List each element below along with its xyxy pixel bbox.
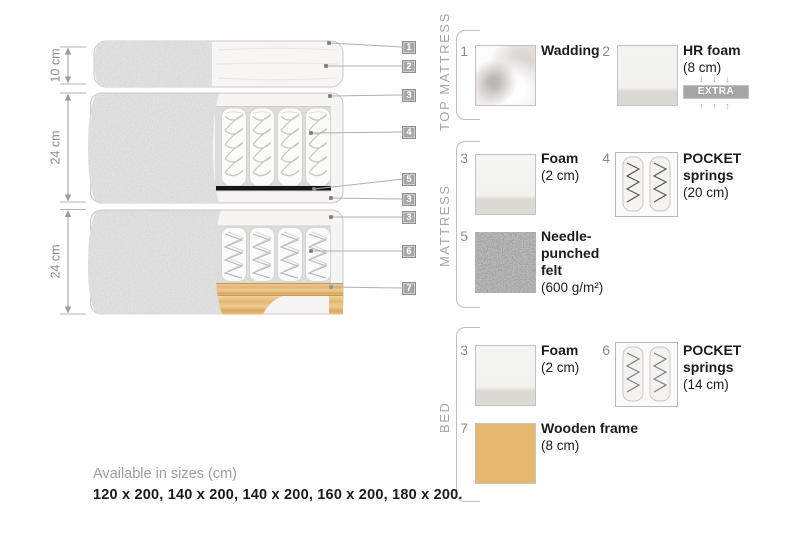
legend-num-7: 7	[452, 420, 468, 436]
wood-swatch	[475, 423, 536, 484]
legend-num-6: 6	[594, 342, 610, 358]
compress-arrows-up-icon: ↑ ↑ ↑	[683, 101, 749, 111]
legend-num-3b: 3	[452, 342, 468, 358]
bed-cross-section-diagram: 10 cm 24 cm 24 cm	[40, 28, 440, 320]
dimension-label-top: 10 cm	[48, 48, 62, 82]
bed-base-section	[88, 210, 343, 315]
legend-sub: (8 cm)	[541, 437, 661, 454]
infographic-canvas: 10 cm 24 cm 24 cm	[0, 0, 800, 533]
available-sizes-list: 120 x 200, 140 x 200, 140 x 200, 160 x 2…	[93, 487, 463, 503]
dimension-annotations	[60, 47, 86, 314]
callout-badge-6: 6	[402, 245, 416, 258]
legend-title: POCKET springs	[683, 150, 761, 184]
felt-swatch	[475, 232, 536, 293]
legend-title: Needle-punched felt	[541, 228, 613, 279]
legend-num-2: 2	[594, 43, 610, 59]
callout-badge-7: 7	[402, 282, 416, 295]
pocket-springs-swatch-20	[615, 152, 678, 217]
pocket-springs-swatch-14	[615, 342, 678, 407]
legend-item-felt: Needle-punched felt (600 g/m²)	[541, 228, 613, 296]
dimension-label-middle: 24 cm	[48, 130, 62, 164]
legend-item-wooden-frame: Wooden frame (8 cm)	[541, 420, 661, 454]
legend-title: POCKET springs	[683, 342, 761, 376]
callout-badge-2: 2	[402, 60, 416, 73]
legend-item-pocket-springs-20: POCKET springs (20 cm)	[683, 150, 761, 201]
legend-num-3: 3	[452, 150, 468, 166]
legend-sub: (14 cm)	[683, 376, 761, 393]
legend-sub: (20 cm)	[683, 184, 761, 201]
compress-arrows-down-icon: ↓ ↓ ↓	[683, 74, 749, 84]
callout-badge-4: 4	[402, 126, 416, 139]
extra-soft-badge: EXTRA SOFT	[683, 85, 749, 99]
legend-num-5: 5	[452, 228, 468, 244]
legend-item-hr-foam: HR foam (8 cm)	[683, 42, 761, 76]
legend-num-4: 4	[594, 150, 610, 166]
callout-badge-3c: 3	[402, 211, 416, 224]
bed-base-fabric	[88, 211, 222, 315]
legend-num-1: 1	[452, 43, 468, 59]
legend-sub: (2 cm)	[541, 359, 619, 376]
top-mattress-section	[94, 41, 343, 87]
wadding-swatch	[475, 45, 536, 106]
legend-title: Wooden frame	[541, 420, 661, 437]
legend-sub: (2 cm)	[541, 167, 619, 184]
callout-badge-3a: 3	[402, 89, 416, 102]
available-sizes-heading: Available in sizes (cm)	[93, 466, 237, 482]
legend-item-pocket-springs-14: POCKET springs (14 cm)	[683, 342, 761, 393]
dimension-label-bottom: 24 cm	[48, 244, 62, 278]
legend-sub: (600 g/m²)	[541, 279, 613, 296]
middle-mattress-fabric	[88, 94, 219, 204]
callout-badge-5: 5	[402, 173, 416, 186]
callout-badge-1: 1	[402, 41, 416, 54]
section-label-mattress: MATTRESS	[437, 184, 452, 267]
callout-badge-3b: 3	[402, 193, 416, 206]
section-label-bed: BED	[437, 401, 452, 433]
top-mattress-fabric	[94, 41, 212, 87]
middle-mattress-section	[88, 93, 343, 203]
hr-foam-swatch	[617, 45, 678, 106]
foam-swatch-bed	[475, 345, 536, 406]
legend-title: HR foam	[683, 42, 761, 59]
section-label-top-mattress: TOP MATTRESS	[437, 12, 452, 131]
foam-swatch	[475, 154, 536, 215]
